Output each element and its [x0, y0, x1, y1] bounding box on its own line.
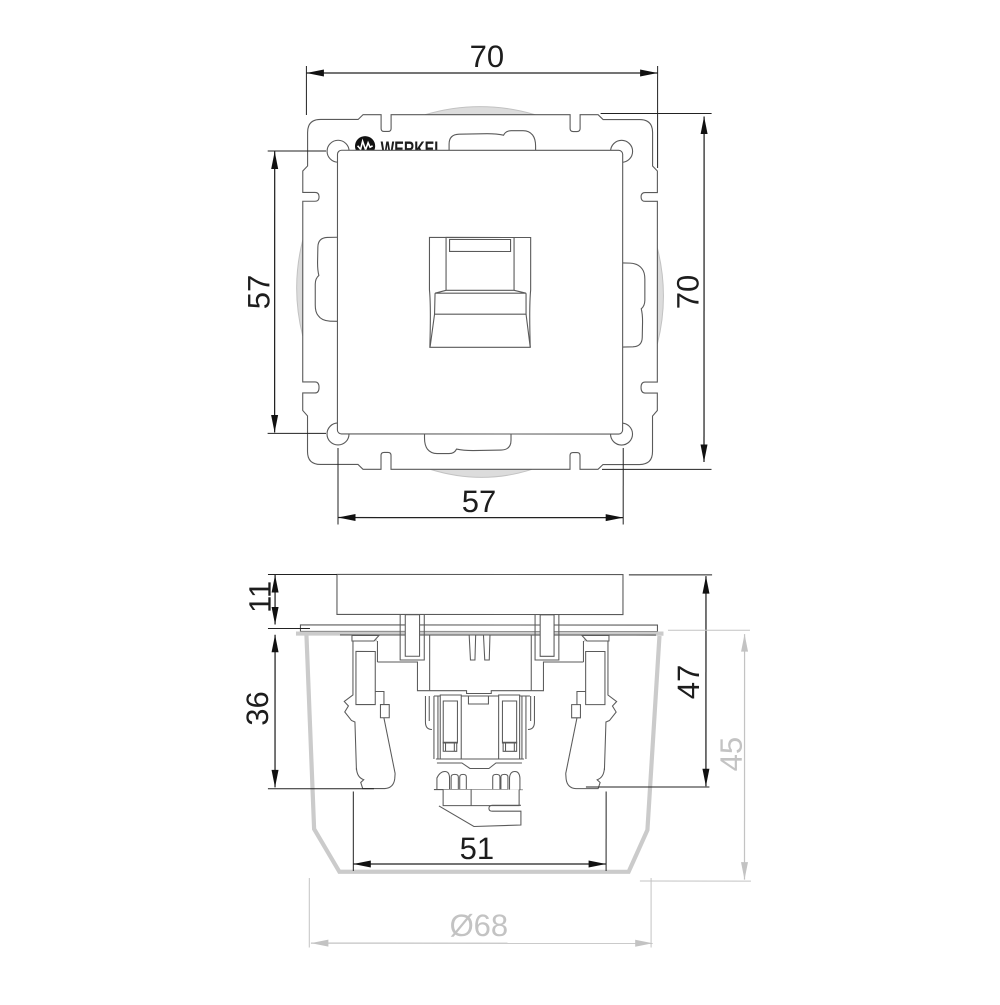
svg-text:36: 36 [240, 691, 275, 725]
svg-text:45: 45 [714, 737, 749, 771]
svg-text:57: 57 [462, 484, 496, 519]
svg-text:57: 57 [241, 275, 276, 309]
svg-text:70: 70 [671, 275, 706, 309]
svg-text:47: 47 [671, 665, 706, 699]
svg-text:11: 11 [243, 581, 278, 613]
svg-text:Ø68: Ø68 [450, 908, 509, 943]
svg-text:51: 51 [460, 831, 494, 866]
svg-text:70: 70 [470, 39, 504, 74]
